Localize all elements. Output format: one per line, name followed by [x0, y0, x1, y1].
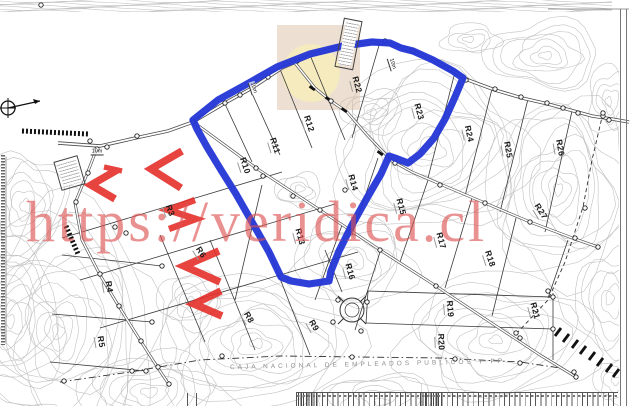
- hatched-road-band: [22, 131, 88, 134]
- survey-point: [156, 365, 160, 369]
- survey-point: [135, 134, 139, 138]
- survey-point: [329, 99, 333, 103]
- survey-point: [483, 201, 487, 205]
- survey-point: [220, 354, 224, 358]
- survey-point: [350, 355, 354, 359]
- survey-point: [583, 206, 587, 210]
- survey-point: [88, 139, 92, 143]
- table-text-row: [296, 395, 618, 397]
- survey-point: [551, 327, 555, 331]
- survey-point: [39, 3, 43, 7]
- survey-point: [546, 289, 550, 293]
- survey-point: [113, 225, 117, 229]
- survey-point: [160, 264, 164, 268]
- survey-point: [572, 370, 576, 374]
- survey-point: [438, 183, 442, 187]
- survey-point: [150, 320, 154, 324]
- red-checkmark-1: [151, 151, 182, 188]
- red-checkmark-2-tail: [104, 167, 122, 171]
- top-contour-band: [0, 0, 612, 14]
- survey-point: [607, 118, 611, 122]
- coordinate-table-strip: [296, 392, 618, 406]
- survey-point: [144, 369, 148, 373]
- table-left-fragment: [187, 393, 197, 406]
- survey-point: [551, 295, 555, 299]
- survey-point: [434, 284, 438, 288]
- survey-point: [117, 304, 121, 308]
- survey-point: [514, 331, 518, 335]
- survey-point: [519, 95, 523, 99]
- survey-point: [167, 382, 171, 386]
- red-checkmark-3: [168, 200, 196, 229]
- survey-point: [223, 101, 227, 105]
- survey-point: [518, 361, 522, 365]
- survey-point: [574, 375, 578, 379]
- north-arrow-icon: [0, 98, 40, 118]
- survey-point: [545, 101, 549, 105]
- survey-point: [318, 208, 322, 212]
- survey-point: [238, 93, 242, 97]
- survey-point: [336, 298, 340, 302]
- survey-point: [139, 339, 143, 343]
- survey-point: [493, 87, 497, 91]
- survey-point: [74, 200, 78, 204]
- survey-point: [343, 188, 347, 192]
- survey-point: [291, 194, 295, 198]
- red-checkmark-2: [91, 170, 117, 199]
- survey-point: [528, 220, 532, 224]
- plan-map-canvas: [0, 0, 634, 406]
- survey-point: [573, 236, 577, 240]
- survey-point: [86, 171, 90, 175]
- survey-point: [596, 245, 600, 249]
- survey-point: [62, 379, 66, 383]
- survey-point: [576, 111, 580, 115]
- survey-point: [561, 106, 565, 110]
- survey-point: [130, 369, 134, 373]
- red-checkmark-4: [184, 251, 220, 282]
- survey-point: [378, 248, 382, 252]
- survey-point: [105, 145, 109, 149]
- survey-point: [254, 166, 258, 170]
- survey-point: [98, 272, 102, 276]
- survey-point: [365, 300, 369, 304]
- survey-point: [95, 147, 99, 151]
- survey-point: [359, 329, 363, 333]
- survey-point: [518, 336, 522, 340]
- margin-note-illegible: [1, 155, 5, 345]
- survey-point: [261, 174, 265, 178]
- survey-point: [601, 111, 605, 115]
- survey-plan-sheet: R3R4R5R6R8R9R10R11R12R13R14R15R16R17R18R…: [0, 0, 634, 406]
- survey-point: [124, 231, 128, 235]
- survey-point: [331, 320, 335, 324]
